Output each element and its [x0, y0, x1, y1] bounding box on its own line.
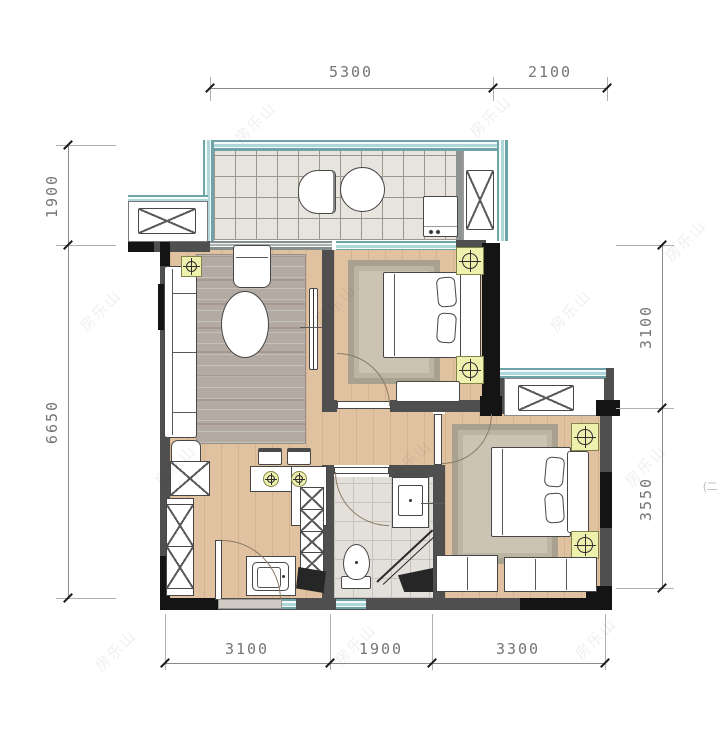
- watermark: 房乐山: [75, 285, 126, 336]
- wall-column: [160, 598, 218, 610]
- wall-column: [600, 472, 612, 528]
- watermark: 房乐山: [570, 613, 621, 664]
- bay-window-box: [518, 385, 574, 411]
- cabinet-divider: [467, 557, 468, 590]
- equipment-window: [497, 140, 508, 241]
- cabinet-cell: [167, 589, 193, 595]
- bathroom-window: [336, 599, 366, 609]
- watermark: 房乐山: [465, 91, 516, 142]
- bay-window: [500, 368, 606, 378]
- bed-fold-line: [394, 274, 395, 356]
- entry-threshold: [218, 599, 282, 609]
- cabinet-cell: [301, 488, 323, 510]
- pillow: [544, 492, 565, 523]
- extension-line: [616, 588, 674, 589]
- dimension-line: [662, 245, 663, 588]
- watermark: 房乐山: [660, 215, 711, 266]
- equipment-box: [466, 170, 494, 230]
- armchair: [233, 245, 271, 288]
- wall-column: [480, 396, 502, 416]
- armchair-line: [236, 257, 268, 258]
- dimension-line: [210, 88, 607, 89]
- wall-column: [482, 243, 500, 411]
- dimension-label: 3100: [637, 287, 655, 367]
- balcony-window: [203, 140, 508, 151]
- cabinet-cell: [301, 510, 323, 532]
- wall-column: [520, 598, 588, 610]
- wall-column: [160, 240, 170, 266]
- sofa-cushion-line: [172, 352, 196, 353]
- dimension-line: [68, 145, 69, 598]
- bedroom2-wardrobe: [504, 557, 597, 592]
- floor-plan: 5300 2100 1900 6650 3100 3550 3100 1900 …: [0, 0, 722, 738]
- wardrobe-divider: [566, 559, 567, 590]
- vanity-basin: [398, 485, 423, 516]
- bedroom2-cabinet: [436, 555, 498, 592]
- sofa-cushion-line: [172, 412, 196, 413]
- ac-unit-box: [138, 208, 196, 234]
- dimension-label: 3300: [478, 640, 558, 658]
- stool: [287, 448, 311, 465]
- wall-marker: [421, 503, 445, 504]
- stool: [258, 448, 282, 465]
- tv: [309, 288, 318, 370]
- bedroom1-headboard: [460, 266, 481, 362]
- sofa: [164, 266, 197, 438]
- nightstand-lamp: [571, 531, 599, 559]
- kitchen-tall-cabinet: [300, 487, 324, 575]
- cabinet-cell: [167, 547, 193, 589]
- dimension-label: 6650: [43, 382, 61, 462]
- dimension-label: 2100: [510, 63, 590, 81]
- balcony-table: [340, 167, 385, 212]
- extension-line: [616, 408, 674, 409]
- bedroom1-bench: [396, 381, 460, 402]
- dimension-label: 1900: [341, 640, 421, 658]
- nightstand-lamp: [571, 423, 599, 451]
- entry-door-leaf: [215, 540, 222, 600]
- dimension-label: 3100: [207, 640, 287, 658]
- floor-lamp: [181, 256, 202, 277]
- bedroom1-window: [336, 241, 456, 250]
- watermark: 房乐山: [90, 625, 141, 676]
- cabinet-cell: [167, 505, 193, 547]
- toilet-dot: [355, 561, 358, 564]
- balcony-sliding-door: [210, 241, 332, 250]
- nightstand-lamp: [456, 356, 484, 384]
- toilet-bowl: [343, 544, 370, 580]
- edge-watermark: (二: [703, 478, 718, 494]
- sofa-cushion-line: [172, 293, 196, 294]
- bedroom2-door-leaf: [434, 414, 442, 465]
- balcony-chair: [298, 170, 336, 214]
- washing-machine: [423, 196, 458, 237]
- shoe-cabinet: [166, 498, 194, 596]
- wall-segment: [322, 250, 334, 402]
- faucet-dot: [282, 575, 285, 578]
- dimension-label: 3550: [637, 459, 655, 539]
- coffee-table: [221, 291, 269, 358]
- bed-fold-line: [502, 449, 503, 535]
- wardrobe-divider: [535, 559, 536, 590]
- balcony-floor: [214, 151, 458, 240]
- pillow: [436, 312, 457, 343]
- basin-dot: [409, 499, 412, 502]
- dimension-label: 5300: [311, 63, 391, 81]
- tv-marker: [300, 327, 322, 328]
- fridge-cabinet: [170, 461, 210, 496]
- nightstand-lamp: [456, 247, 484, 275]
- pillow: [544, 456, 566, 488]
- wall-segment: [322, 400, 337, 412]
- watermark: 房乐山: [545, 285, 596, 336]
- cabinet-cell: [301, 532, 323, 554]
- bedroom2-headboard: [567, 451, 589, 533]
- pendant-lamp: [291, 471, 307, 487]
- extension-line: [616, 245, 674, 246]
- pillow: [436, 276, 458, 308]
- dimension-line: [165, 663, 605, 664]
- dimension-label: 1900: [43, 156, 61, 236]
- pendant-lamp: [263, 471, 279, 487]
